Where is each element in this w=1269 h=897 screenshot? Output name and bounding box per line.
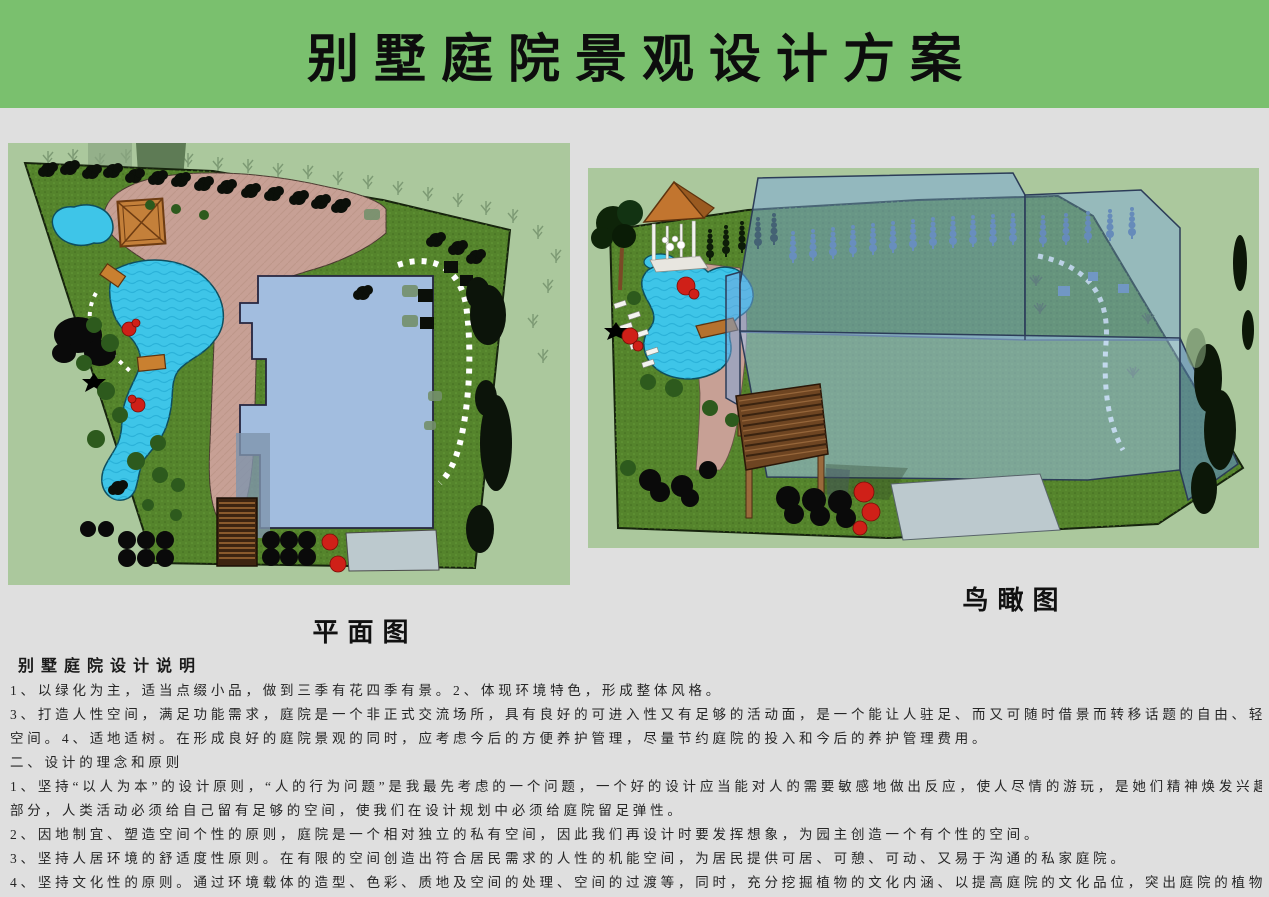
driveway-plan <box>346 530 439 571</box>
description-line: 空间。4、适地适树。在形成良好的庭院景观的同时，应考虑今后的方便养护管理，尽量节… <box>10 727 1262 751</box>
plan-view-caption: 平面图 <box>255 612 475 649</box>
description-lines: 1、以绿化为主，适当点缀小品，做到三季有花四季有景。2、体现环境特色，形成整体风… <box>10 679 1262 895</box>
description-line: 1、以绿化为主，适当点缀小品，做到三季有花四季有景。2、体现环境特色，形成整体风… <box>10 679 1262 703</box>
description-line: 二、设计的理念和原则 <box>10 751 1262 775</box>
bird-view-image <box>588 168 1259 548</box>
bird-view-caption: 鸟瞰图 <box>905 580 1125 617</box>
presentation-board: 别墅庭院景观设计方案 <box>0 0 1269 897</box>
description-line: 3、坚持人居环境的舒适度性原则。在有限的空间创造出符合居民需求的人性的机能空间，… <box>10 847 1262 871</box>
description-line: 3、打造人性空间，满足功能需求，庭院是一个非正式交流场所，具有良好的可进入性又有… <box>10 703 1262 727</box>
description-line: 2、因地制宜、塑造空间个性的原则，庭院是一个相对独立的私有空间，因此我们再设计时… <box>10 823 1262 847</box>
description-line: 4、坚持文化性的原则。通过环境载体的造型、色彩、质地及空间的处理、空间的过渡等，… <box>10 871 1262 895</box>
plan-view-image <box>8 143 570 585</box>
house-footprint <box>236 276 433 538</box>
description-heading: 别墅庭院设计说明 <box>18 652 202 676</box>
description-line: 部分，人类活动必须给自己留有足够的空间，使我们在设计规划中必须给庭院留足弹性。 <box>10 799 1262 823</box>
pavilion-plan <box>117 199 165 247</box>
driveway-3d <box>891 474 1060 540</box>
description-line: 1、坚持“以人为本”的设计原则，“人的行为问题”是我最先考虑的一个问题，一个好的… <box>10 775 1262 799</box>
plan-view-drawing <box>8 143 570 585</box>
pergola-plan <box>217 498 257 566</box>
bird-view-drawing <box>588 168 1259 548</box>
page-title: 别墅庭院景观设计方案 <box>292 17 977 92</box>
title-banner: 别墅庭院景观设计方案 <box>0 0 1269 108</box>
